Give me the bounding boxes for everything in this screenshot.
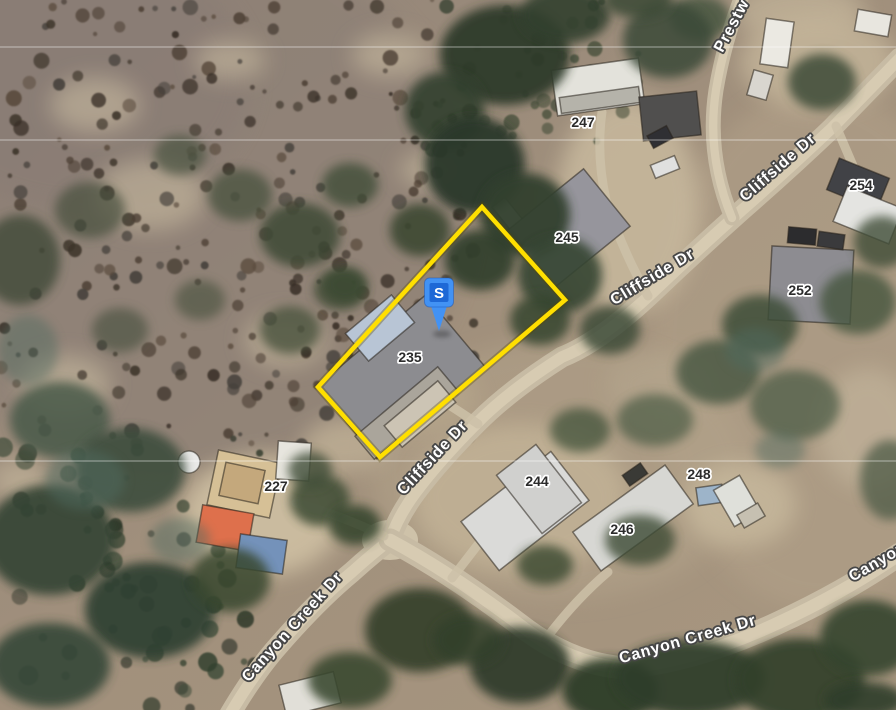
house-number-label: 246 (610, 521, 634, 537)
tree-cluster (45, 450, 125, 510)
building-footprint (760, 18, 794, 67)
tree-cluster (617, 394, 693, 446)
tree-cluster (260, 203, 340, 267)
tree-cluster (208, 169, 272, 221)
tree-cluster (820, 270, 896, 334)
tree-cluster (725, 328, 785, 372)
tree-cluster (580, 306, 640, 354)
tree-cluster (329, 505, 381, 545)
tree-cluster (260, 306, 320, 354)
tree-cluster (288, 452, 332, 488)
house-number-label: 252 (788, 282, 812, 298)
tree-cluster (550, 408, 610, 452)
house-number-label: 244 (525, 473, 549, 489)
house-number-label: 247 (571, 114, 595, 130)
building-footprint (787, 227, 816, 245)
building-footprint (219, 462, 265, 504)
house-number-label: 254 (849, 177, 873, 193)
house-number-label: 245 (555, 229, 579, 245)
tree-cluster (150, 518, 210, 562)
tree-cluster (755, 432, 805, 468)
tree-cluster (92, 308, 148, 352)
marker-label: S (434, 285, 444, 302)
tree-cluster (323, 267, 367, 303)
tree-cluster (308, 652, 392, 708)
building-footprint (817, 231, 845, 249)
tree-cluster (517, 545, 573, 585)
house-number-label: 235 (398, 349, 422, 365)
map-viewport[interactable]: PrestwCliffside DrCliffside DrCliffside … (0, 0, 896, 710)
tree-cluster (0, 315, 58, 385)
house-number-label: 227 (264, 478, 288, 494)
tree-cluster (788, 54, 856, 110)
tree-cluster (322, 163, 378, 207)
tree-cluster (55, 182, 125, 238)
satellite-map[interactable]: PrestwCliffside DrCliffside DrCliffside … (0, 0, 896, 710)
house-number-label: 248 (687, 466, 711, 482)
tree-cluster (750, 370, 840, 440)
tree-cluster (175, 280, 225, 320)
tree-cluster (154, 135, 206, 175)
tree-cluster (433, 615, 503, 665)
tree-cluster (190, 548, 270, 612)
